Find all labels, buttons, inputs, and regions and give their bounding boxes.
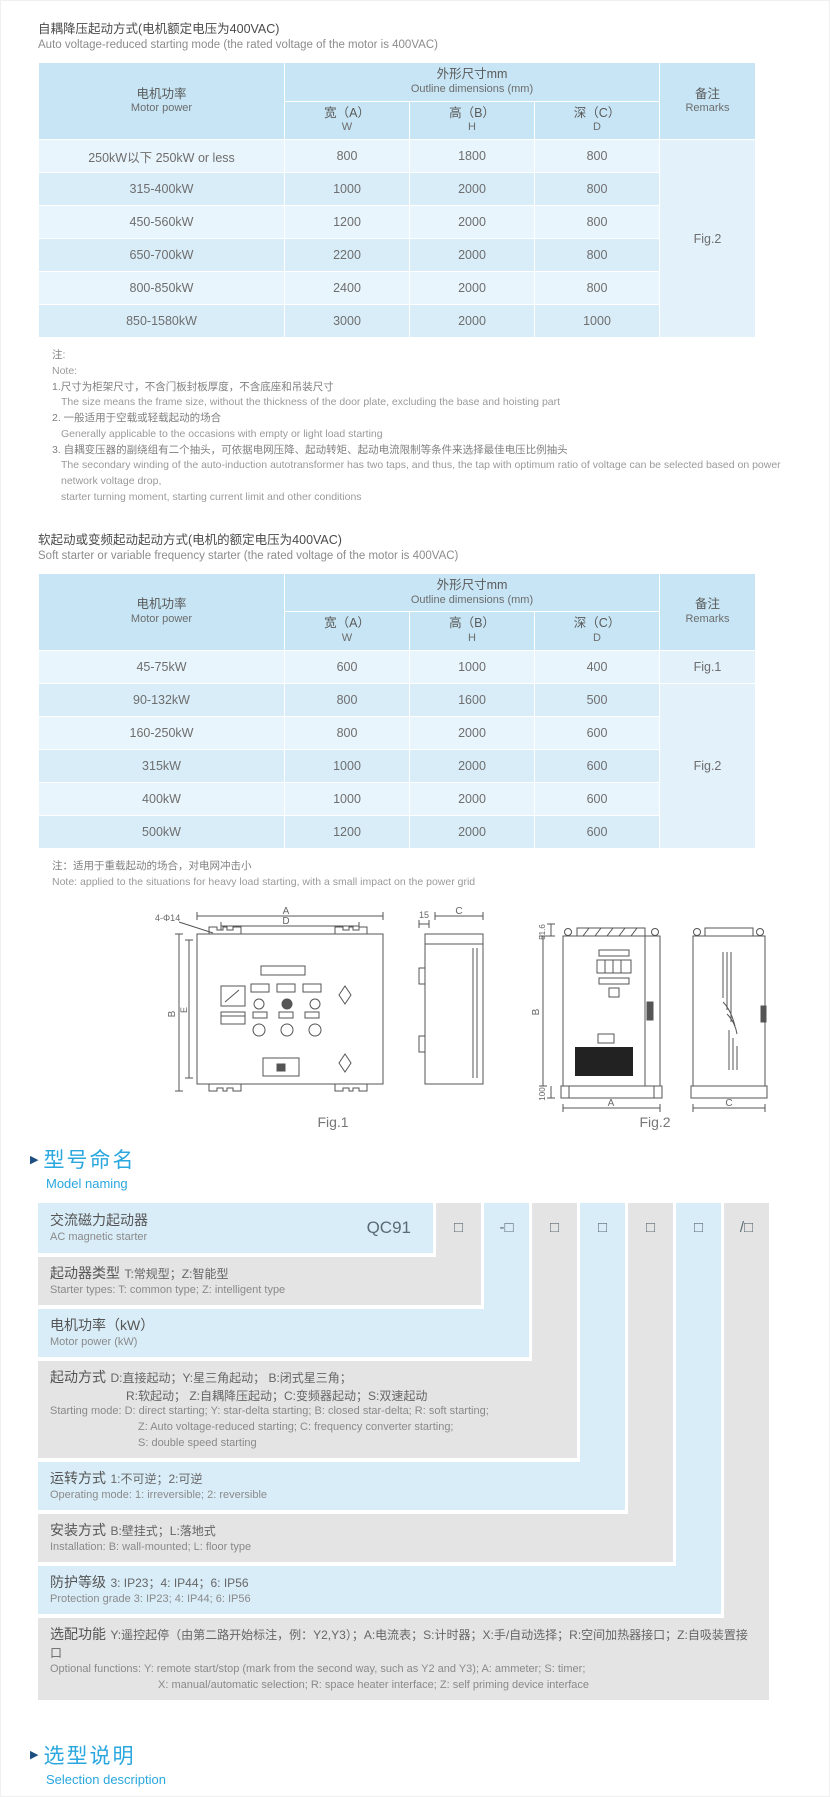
cell-w: 2400 bbox=[285, 272, 410, 305]
note-line: 1.尺寸为柜架尺寸，不含门板封板厚度，不含底座和吊装尺寸 bbox=[52, 380, 792, 396]
model-naming-title-en: Model naming bbox=[46, 1176, 792, 1191]
cell-w: 2200 bbox=[285, 239, 410, 272]
table-row: 800-850kW24002000800 bbox=[39, 272, 756, 305]
cell-w: 800 bbox=[285, 140, 410, 173]
height-cn: 高（B） bbox=[412, 106, 532, 122]
cell-h: 1800 bbox=[410, 140, 535, 173]
cell-d: 600 bbox=[535, 782, 660, 815]
row-detail-cn: D:直接起动；Y:星三角起动； B:闭式星三角； bbox=[110, 1371, 351, 1385]
naming-row-motor-power: 电机功率（kW） Motor power (kW) bbox=[38, 1309, 529, 1357]
row-detail-cn: T:常规型；Z:智能型 bbox=[124, 1267, 228, 1281]
fig1-side-15-label: 15 bbox=[419, 910, 429, 920]
auto-voltage-dimensions-table: 电机功率 Motor power 外形尺寸mm Outline dimensio… bbox=[38, 62, 756, 338]
row-label-cn: 安装方式 bbox=[50, 1522, 106, 1538]
cell-w: 1200 bbox=[285, 206, 410, 239]
fig2-dim-c-label: C bbox=[725, 1098, 732, 1109]
dims-en: Outline dimensions (mm) bbox=[287, 594, 657, 608]
cell-h: 2000 bbox=[410, 173, 535, 206]
naming-row-product: 交流磁力起动器 AC magnetic starter QC91 bbox=[38, 1203, 433, 1253]
selection-description-heading: ▶ 选型说明 Selection description bbox=[30, 1740, 792, 1787]
cell-w: 600 bbox=[285, 650, 410, 683]
code-strip-6: □ bbox=[676, 1203, 721, 1614]
depth-sub: D bbox=[537, 632, 657, 646]
col-header-depth: 深（C）D bbox=[535, 101, 660, 139]
row-detail-cn: 1:不可逆；2:可逆 bbox=[110, 1472, 202, 1486]
cell-power: 160-250kW bbox=[39, 716, 285, 749]
col-header-depth: 深（C）D bbox=[535, 612, 660, 650]
width-sub: W bbox=[287, 121, 407, 135]
col-header-width: 宽（A）W bbox=[285, 612, 410, 650]
col-header-width: 宽（A）W bbox=[285, 101, 410, 139]
row-detail-cn: Y:遥控起停（由第二路开始标注，例：Y2,Y3）；A:电流表；S:计时器；X:手… bbox=[50, 1628, 748, 1660]
cell-power: 450-560kW bbox=[39, 206, 285, 239]
code-box: □ bbox=[532, 1203, 577, 1253]
row-label-en: Optional functions: Y: remote start/stop… bbox=[50, 1662, 757, 1678]
table2-note: 注：适用于重载起动的场合，对电网冲击小 Note: applied to the… bbox=[52, 859, 792, 891]
naming-row-installation: 安装方式 B:壁挂式；L:落地式 Installation: B: wall-m… bbox=[38, 1514, 673, 1562]
fig1-caption: Fig.1 bbox=[317, 1114, 348, 1130]
width-sub: W bbox=[287, 632, 407, 646]
catalog-page: 自耦降压起动方式(电机额定电压为400VAC) Auto voltage-red… bbox=[0, 0, 830, 1797]
cell-w: 1000 bbox=[285, 749, 410, 782]
row-label-en: Protection grade 3: IP23; 4: IP44; 6: IP… bbox=[50, 1592, 709, 1608]
fig2-51-label: 51.6 bbox=[538, 924, 547, 940]
cell-power: 500kW bbox=[39, 815, 285, 848]
height-sub: H bbox=[412, 632, 532, 646]
cell-d: 800 bbox=[535, 140, 660, 173]
col-header-motor-power: 电机功率 Motor power bbox=[39, 63, 285, 140]
cell-power: 90-132kW bbox=[39, 683, 285, 716]
cell-d: 400 bbox=[535, 650, 660, 683]
cell-power: 650-700kW bbox=[39, 239, 285, 272]
remarks-cn: 备注 bbox=[662, 87, 753, 103]
note-line: starter turning moment, starting current… bbox=[52, 490, 792, 506]
table-row: 400kW10002000600 bbox=[39, 782, 756, 815]
note-line: 3. 自耦变压器的副绕组有二个抽头，可依据电网压降、起动转矩、起动电流限制等条件… bbox=[52, 443, 792, 459]
code-strip-5: □ bbox=[628, 1203, 673, 1562]
col-header-outline-dimensions: 外形尺寸mm Outline dimensions (mm) bbox=[285, 63, 660, 101]
note-line: 注: bbox=[52, 348, 792, 364]
dims-en: Outline dimensions (mm) bbox=[287, 83, 657, 97]
table-row: 500kW12002000600 bbox=[39, 815, 756, 848]
model-prefix: QC91 bbox=[367, 1218, 421, 1238]
cell-remark-fig2: Fig.2 bbox=[660, 140, 756, 338]
row-label-cn: 电机功率（kW） bbox=[50, 1315, 517, 1335]
naming-row-protection-grade: 防护等级 3: IP23；4: IP44；6: IP56 Protection … bbox=[38, 1566, 721, 1614]
fig1-dim-b-label: B bbox=[167, 1011, 178, 1018]
cell-h: 1600 bbox=[410, 683, 535, 716]
depth-cn: 深（C） bbox=[537, 616, 657, 632]
cell-remark-fig1: Fig.1 bbox=[660, 650, 756, 683]
row-label-cn: 起动方式 bbox=[50, 1369, 106, 1385]
col-header-remarks: 备注 Remarks bbox=[660, 574, 756, 651]
cell-w: 800 bbox=[285, 716, 410, 749]
outline-drawings: A D 4-Φ14 B E 15 C 51.6 B 100 A C Fig.1 … bbox=[38, 906, 792, 1130]
cell-w: 1000 bbox=[285, 782, 410, 815]
section2-title-cn: 软起动或变频起动起动方式(电机的额定电压为400VAC) bbox=[38, 532, 792, 549]
col-header-motor-power: 电机功率 Motor power bbox=[39, 574, 285, 651]
fig1-dim-d-label: D bbox=[282, 916, 289, 927]
fig2-dim-a-label: A bbox=[608, 1098, 615, 1109]
code-box: □ bbox=[580, 1203, 625, 1253]
fig1-dim-c-label: C bbox=[455, 906, 462, 917]
row-detail-cn: 3: IP23；4: IP44；6: IP56 bbox=[110, 1576, 248, 1590]
remarks-en: Remarks bbox=[662, 613, 753, 627]
cell-remark-fig2: Fig.2 bbox=[660, 683, 756, 848]
cell-h: 1000 bbox=[410, 650, 535, 683]
selection-title-en: Selection description bbox=[46, 1772, 792, 1787]
cell-h: 2000 bbox=[410, 782, 535, 815]
row-detail-cn: R:软起动； Z:自耦降压起动；C:变频器起动；S:双速起动 bbox=[50, 1387, 565, 1404]
row-label-en: Operating mode: 1: irreversible; 2: reve… bbox=[50, 1488, 613, 1504]
motor-power-en: Motor power bbox=[41, 613, 282, 627]
table-row: 45-75kW 600 1000 400 Fig.1 bbox=[39, 650, 756, 683]
cell-h: 2000 bbox=[410, 305, 535, 338]
code-box: □ bbox=[676, 1203, 721, 1253]
code-box: /□ bbox=[724, 1203, 769, 1253]
cell-power: 400kW bbox=[39, 782, 285, 815]
col-header-height: 高（B）H bbox=[410, 612, 535, 650]
triangle-bullet-icon: ▶ bbox=[30, 1748, 38, 1761]
cell-w: 1200 bbox=[285, 815, 410, 848]
model-naming-heading: ▶ 型号命名 Model naming bbox=[30, 1144, 792, 1191]
cell-d: 500 bbox=[535, 683, 660, 716]
row-label-en: X: manual/automatic selection; R: space … bbox=[50, 1678, 757, 1694]
table-row: 250kW以下 250kW or less 800 1800 800 Fig.2 bbox=[39, 140, 756, 173]
col-header-height: 高（B）H bbox=[410, 101, 535, 139]
naming-row-starting-mode: 起动方式 D:直接起动；Y:星三角起动； B:闭式星三角； R:软起动； Z:自… bbox=[38, 1361, 577, 1458]
fig2-caption: Fig.2 bbox=[639, 1114, 670, 1130]
model-naming-title-cn: 型号命名 bbox=[43, 1144, 135, 1174]
note-line: 注：适用于重载起动的场合，对电网冲击小 bbox=[52, 859, 792, 875]
row-label-cn: 选配功能 bbox=[50, 1626, 106, 1642]
table-row: 315kW10002000600 bbox=[39, 749, 756, 782]
remarks-en: Remarks bbox=[662, 102, 753, 116]
note-line: Note: applied to the situations for heav… bbox=[52, 875, 792, 891]
row-label-en: AC magnetic starter bbox=[50, 1230, 148, 1246]
model-naming-diagram: □ -□ □ □ □ □ /□ 交流磁力起动器 AC magnetic star… bbox=[38, 1203, 769, 1699]
depth-sub: D bbox=[537, 121, 657, 135]
cell-h: 2000 bbox=[410, 206, 535, 239]
width-cn: 宽（A） bbox=[287, 616, 407, 632]
table-row: 650-700kW22002000800 bbox=[39, 239, 756, 272]
fig1-dim-e-label: E bbox=[179, 1007, 189, 1013]
row-label-cn: 起动器类型 bbox=[50, 1265, 120, 1281]
naming-row-optional-functions: 选配功能 Y:遥控起停（由第二路开始标注，例：Y2,Y3）；A:电流表；S:计时… bbox=[38, 1618, 769, 1700]
cell-power: 45-75kW bbox=[39, 650, 285, 683]
row-label-cn: 交流磁力起动器 bbox=[50, 1210, 148, 1230]
note-line: Generally applicable to the occasions wi… bbox=[52, 427, 792, 443]
remarks-cn: 备注 bbox=[662, 597, 753, 613]
code-box: □ bbox=[436, 1203, 481, 1253]
table-row: 90-132kW 800 1600 500 Fig.2 bbox=[39, 683, 756, 716]
note-line: The secondary winding of the auto-induct… bbox=[52, 458, 792, 490]
section1-title-cn: 自耦降压起动方式(电机额定电压为400VAC) bbox=[38, 21, 792, 38]
cell-h: 2000 bbox=[410, 716, 535, 749]
cell-power: 315kW bbox=[39, 749, 285, 782]
note-line: Note: bbox=[52, 364, 792, 380]
row-label-cn: 运转方式 bbox=[50, 1470, 106, 1486]
cell-power: 250kW以下 250kW or less bbox=[39, 140, 285, 173]
col-header-remarks: 备注 Remarks bbox=[660, 63, 756, 140]
motor-power-en: Motor power bbox=[41, 102, 282, 116]
row-label-en: Z: Auto voltage-reduced starting; C: fre… bbox=[50, 1420, 565, 1436]
soft-starter-dimensions-table: 电机功率 Motor power 外形尺寸mm Outline dimensio… bbox=[38, 573, 756, 849]
cell-d: 800 bbox=[535, 239, 660, 272]
depth-cn: 深（C） bbox=[537, 106, 657, 122]
row-label-en: Starting mode: D: direct starting; Y: st… bbox=[50, 1404, 565, 1420]
row-detail-cn: B:壁挂式；L:落地式 bbox=[110, 1524, 215, 1538]
section2-title-en: Soft starter or variable frequency start… bbox=[38, 549, 792, 565]
code-box: -□ bbox=[484, 1203, 529, 1253]
cell-h: 2000 bbox=[410, 749, 535, 782]
fig2-100-label: 100 bbox=[538, 1087, 547, 1101]
note-line: The size means the frame size, without t… bbox=[52, 395, 792, 411]
naming-row-starter-type: 起动器类型 T:常规型；Z:智能型 Starter types: T: comm… bbox=[38, 1257, 481, 1305]
section1-title-en: Auto voltage-reduced starting mode (the … bbox=[38, 38, 792, 54]
col-header-outline-dimensions: 外形尺寸mm Outline dimensions (mm) bbox=[285, 574, 660, 612]
cell-h: 2000 bbox=[410, 239, 535, 272]
table1-notes: 注: Note: 1.尺寸为柜架尺寸，不含门板封板厚度，不含底座和吊装尺寸 Th… bbox=[52, 348, 792, 506]
dims-cn: 外形尺寸mm bbox=[287, 67, 657, 83]
cell-d: 800 bbox=[535, 173, 660, 206]
width-cn: 宽（A） bbox=[287, 106, 407, 122]
row-label-en: S: double speed starting bbox=[50, 1436, 565, 1452]
cell-d: 1000 bbox=[535, 305, 660, 338]
table-row: 315-400kW10002000800 bbox=[39, 173, 756, 206]
cabinet-drawings-figure: A D 4-Φ14 B E 15 C 51.6 B 100 A C Fig.1 … bbox=[93, 906, 793, 1130]
dims-cn: 外形尺寸mm bbox=[287, 578, 657, 594]
cell-w: 1000 bbox=[285, 173, 410, 206]
cell-d: 800 bbox=[535, 206, 660, 239]
motor-power-cn: 电机功率 bbox=[41, 597, 282, 613]
cell-power: 315-400kW bbox=[39, 173, 285, 206]
fig2-dim-b-label: B bbox=[531, 1009, 542, 1016]
motor-power-cn: 电机功率 bbox=[41, 87, 282, 103]
cell-w: 800 bbox=[285, 683, 410, 716]
fig1-holes-label: 4-Φ14 bbox=[155, 913, 180, 923]
cell-w: 3000 bbox=[285, 305, 410, 338]
code-box: □ bbox=[628, 1203, 673, 1253]
cell-d: 600 bbox=[535, 716, 660, 749]
cell-h: 2000 bbox=[410, 815, 535, 848]
row-label-cn: 防护等级 bbox=[50, 1574, 106, 1590]
table-row: 450-560kW12002000800 bbox=[39, 206, 756, 239]
naming-row-operating-mode: 运转方式 1:不可逆；2:可逆 Operating mode: 1: irrev… bbox=[38, 1462, 625, 1510]
cell-power: 800-850kW bbox=[39, 272, 285, 305]
height-cn: 高（B） bbox=[412, 616, 532, 632]
row-label-en: Motor power (kW) bbox=[50, 1335, 517, 1351]
table-row: 850-1580kW300020001000 bbox=[39, 305, 756, 338]
triangle-bullet-icon: ▶ bbox=[30, 1153, 38, 1166]
note-line: 2. 一般适用于空载或轻载起动的场合 bbox=[52, 411, 792, 427]
selection-title-cn: 选型说明 bbox=[43, 1740, 135, 1770]
cell-d: 600 bbox=[535, 815, 660, 848]
row-label-en: Installation: B: wall-mounted; L: floor … bbox=[50, 1540, 661, 1556]
height-sub: H bbox=[412, 121, 532, 135]
row-label-en: Starter types: T: common type; Z: intell… bbox=[50, 1283, 469, 1299]
cell-d: 600 bbox=[535, 749, 660, 782]
cell-d: 800 bbox=[535, 272, 660, 305]
cell-power: 850-1580kW bbox=[39, 305, 285, 338]
cell-h: 2000 bbox=[410, 272, 535, 305]
table-row: 160-250kW8002000600 bbox=[39, 716, 756, 749]
